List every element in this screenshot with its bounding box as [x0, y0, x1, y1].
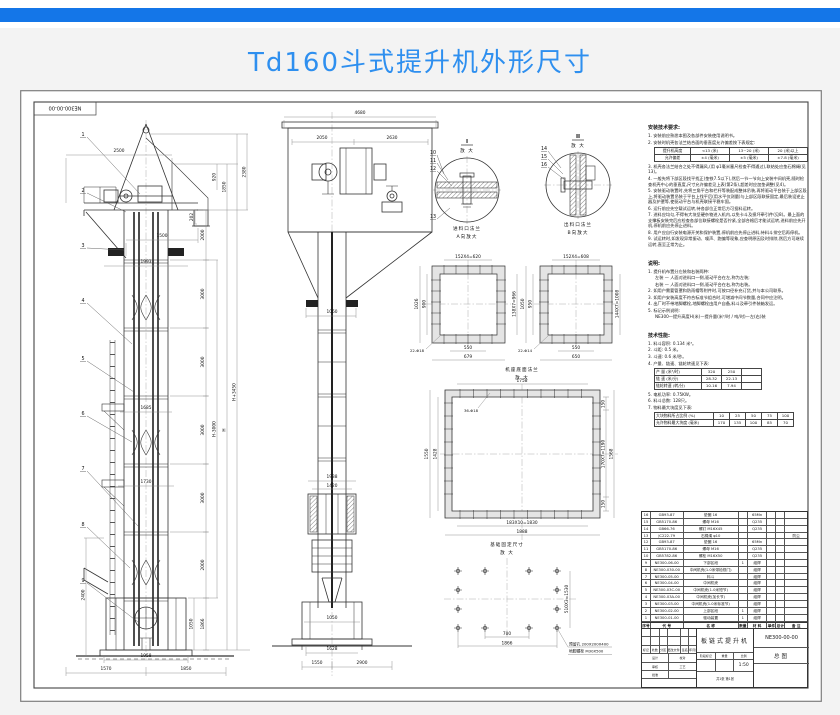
front-elevation [272, 122, 438, 650]
bom-cell: NE300-04-00 [651, 580, 684, 586]
revision-cell [642, 637, 651, 644]
bom-cell [785, 512, 807, 518]
table-cell: 170 [714, 420, 730, 427]
table-cell: 22.13 [722, 376, 742, 383]
bom-cell: NE300-05-00 [651, 574, 684, 580]
remarks-item: 2. 如用户需要管罩和防雨帽等附件时,可按口径补充订货,并与本公司联系。 [648, 288, 808, 294]
bom-cell: GB93-87 [651, 539, 684, 545]
table-cell [742, 369, 762, 376]
bom-cell: 组焊 [748, 560, 768, 566]
bom-cell: 6 [642, 580, 651, 586]
detail-zoom-label: 放 大 [571, 142, 585, 149]
scale-value: 1:50 [734, 660, 753, 671]
bom-row: 1NE300-01-00驱动装置1组焊 [642, 615, 807, 622]
title-block-right: NE300-00-00 总图 [754, 629, 809, 687]
table-cell: 28.32 [702, 376, 722, 383]
bom-cell [767, 574, 776, 580]
tech-item: 2. 斗距: 0.5 米。 [648, 347, 808, 353]
corner-drawing-code: NE300-00-00 [49, 105, 82, 111]
bom-cell: 螺栓 M16X50 [684, 553, 739, 559]
dim-label: 183X10=1830 [506, 520, 537, 526]
bom-cell [739, 526, 748, 532]
outlet-flange-title: 出料口法兰 [564, 221, 592, 228]
dim-label: 900 [422, 300, 428, 308]
install-title: 安装技术要求: [648, 124, 808, 131]
bom-cell: 中间机壳(1.0米带检视门) [684, 567, 739, 573]
dim-label: 679 [464, 354, 472, 360]
bom-cell: 15 [642, 519, 651, 525]
bom-cell [785, 519, 807, 525]
balloon-12: 12 [430, 166, 436, 172]
bom-cell: 下部区段 [684, 560, 739, 566]
bom-cell: 螺母 M16 [684, 546, 739, 552]
bom-cell [776, 574, 785, 580]
bom-row: 15GB5170-86螺母 M16Q235 [642, 519, 807, 526]
revision-label: 签名 [681, 646, 689, 653]
bom-cell [767, 594, 776, 600]
bom-cell [739, 539, 748, 545]
bom-cell: 10 [642, 553, 651, 559]
bom-cell [739, 594, 748, 600]
dim-label: 1568 [609, 448, 615, 459]
bom-cell: 2 [642, 608, 651, 614]
dim-label: 1420 [327, 483, 338, 489]
dim-label: 1060 [327, 309, 338, 315]
bom-cell [767, 567, 776, 573]
dim-label: 1050 [327, 615, 338, 621]
bom-cell: Q235 [748, 526, 768, 532]
bom-cell: 3 [642, 601, 651, 607]
tech-item: 7. 物料最大块度见下表: [648, 405, 808, 411]
bom-row: 7NE300-05-00料斗组焊 [642, 574, 807, 581]
balloon-8: 8 [81, 522, 84, 528]
install-item: 4. 一般先将下部区段找平找正(垫铁7.5以下),然后一节一节向上安装中间机壳,… [648, 176, 808, 187]
outlet-flange-subtitle: B向放大 [568, 229, 589, 236]
install-item: 7. 进料应均匀,不得有大块坚硬杂物进入机内,以免卡斗及损坏牵引件(见8)。最上… [648, 212, 808, 229]
balloon-16: 16 [541, 162, 547, 168]
table-cell: 100 [746, 420, 762, 427]
bom-cell: NE300-01-00 [651, 615, 684, 621]
revision-row [642, 629, 696, 637]
table-cell: <13 (米) [691, 148, 730, 155]
signature-label: 校对 [669, 654, 696, 661]
balloon-10: 10 [430, 150, 436, 156]
dim-label: H-3000 [212, 421, 218, 437]
dim-label: 1730 [141, 479, 152, 485]
foundation-hole-note: 预留孔 200X200X400 [569, 642, 609, 647]
bom-cell: 垫圈 16 [684, 539, 739, 545]
dim-label: 1866 [502, 641, 513, 647]
bom-cell: GB5782-86 [651, 553, 684, 559]
bom-cell: 组焊 [748, 574, 768, 580]
bom-row: 4NE300-03A-00中间机壳(加长节)组焊 [642, 594, 807, 601]
bom-cell: 上部区段 [684, 608, 739, 614]
bom-cell: 7 [642, 574, 651, 580]
balloon-2: 2 [81, 188, 84, 194]
table-cell: 70 [778, 420, 794, 427]
bom-cell: NE300-03C-00 [651, 587, 684, 593]
table-cell: ±4 (毫米) [691, 155, 730, 162]
bom-cell [776, 615, 785, 621]
balloon-7: 7 [81, 466, 84, 472]
bom-cell [785, 574, 807, 580]
revision-label: 年月日 [689, 646, 696, 653]
performance-table: 产 量 (米³/时) 320 250 链 速 (米/分) 28.32 22.13… [654, 368, 762, 390]
balloon-3: 3 [81, 243, 84, 249]
dim-label: 1428 [433, 448, 439, 459]
remarks-item: 4. 出厂时不带地脚螺栓,地脚螺栓由用户自备,料斗及牵引件装箱发运。 [648, 301, 808, 307]
bom-cell: Q235 [748, 519, 768, 525]
bom-cell: 14 [642, 526, 651, 532]
revision-cell [660, 637, 668, 644]
bom-cell [776, 594, 785, 600]
bom-cell: NE300-030-00 [651, 567, 684, 573]
bom-cell [776, 601, 785, 607]
remarks-item: 5. 标记示例说明: [648, 308, 808, 314]
bom-cell [785, 615, 807, 621]
dim-label: 1570 [101, 666, 112, 672]
bom-cell [767, 533, 776, 539]
revision-cell [681, 637, 689, 644]
bom-cell: 料斗 [684, 574, 739, 580]
bom-cell [776, 553, 785, 559]
dim-label: 1850 [222, 181, 228, 192]
dim-label: 152X4=620 [455, 254, 481, 260]
misc-label: 阶段标记 [697, 653, 716, 659]
bom-cell: 驱动装置 [684, 615, 739, 621]
table-cell: ±7.8 (毫米) [769, 155, 808, 162]
revision-header-row: 标记处数分区更改文件号签名年月日 [642, 646, 696, 654]
balloon-1: 1 [81, 132, 84, 138]
tech-item: 3. 斗速: 0.6 米/秒。 [648, 354, 808, 360]
bom-cell: 组焊 [748, 608, 768, 614]
bom-cell: 组焊 [748, 601, 768, 607]
bom-cell: 组焊 [748, 587, 768, 593]
title-block-revision-area: 标记处数分区更改文件号签名年月日 设计校对 审核工艺 批准 [642, 629, 697, 687]
bom-cell: 中间机壳 [684, 580, 739, 586]
bom-cell [785, 587, 807, 593]
signature-cell [669, 671, 696, 678]
bom-cell: 1 [739, 615, 748, 621]
balloon-15: 15 [541, 154, 547, 160]
dim-label: 170X7=1190 [601, 440, 607, 469]
revision-cell [689, 629, 696, 636]
lump-size-table: 大块物料所占比例 (%) 10 25 50 75 100 允许物料最大块度 (毫… [654, 412, 794, 427]
detail-mark: I [466, 139, 468, 145]
bom-cell: 中间机壳(加长节) [684, 594, 739, 600]
revision-cell [689, 637, 696, 644]
table-cell: 75 [762, 413, 778, 420]
misc-value-row: 1:50 [697, 660, 753, 672]
table-cell: 提升机高度 [655, 148, 691, 155]
dim-label: 2380 [242, 166, 248, 177]
dim-label: 550 [572, 345, 580, 351]
bom-cell [739, 580, 748, 586]
balloon-14: 14 [541, 146, 547, 152]
bom-row: 10GB5782-86螺栓 M16X50Q235 [642, 553, 807, 560]
dim-label: 3000 [200, 288, 206, 299]
table-cell: 链 速 (米/分) [655, 376, 702, 383]
remarks-item: 左装 — 人面对进料口一侧,驱动平台在左,称为左装; [648, 275, 808, 281]
install-requirements-section: 安装技术要求: 1. 安装前应熟悉本图及各部件安装使用说明书。 2. 安装时机壳… [648, 124, 808, 248]
bom-row: 12GB93-87垫圈 1665Mn [642, 539, 807, 546]
tech-title: 技术性能: [648, 332, 808, 339]
bom-cell [748, 533, 768, 539]
flange-a [420, 260, 517, 360]
install-item: 2. 安装时机壳各法兰结合面的垂直度允许偏差按下表规定: [648, 140, 808, 146]
table-cell: 13~20 (米) [730, 148, 769, 155]
revision-cell [668, 637, 682, 644]
dim-label: 1550 [424, 448, 430, 459]
dim-label: 1685 [141, 405, 152, 411]
bom-cell [785, 553, 807, 559]
dim-label: 1628 [327, 646, 338, 652]
bom-cell [767, 539, 776, 545]
bom-cell [767, 580, 776, 586]
signature-row: 审核工艺 [642, 663, 696, 671]
bom-cell [739, 574, 748, 580]
dim-label: 3000 [200, 424, 206, 435]
dim-label: 1938 [327, 474, 338, 480]
table-cell: 允许偏差 [655, 155, 691, 162]
bom-cell [785, 594, 807, 600]
base-flange-title: 机座底面法兰 [505, 366, 539, 373]
bom-cell [767, 512, 776, 518]
revision-cell [681, 629, 689, 636]
bom-cell [785, 608, 807, 614]
dim-label: 138X7=966 [512, 291, 518, 317]
dim-label: 1550 [312, 660, 323, 666]
bom-cell [785, 580, 807, 586]
parts-list: 16GB93-87垫圈 1665Mn 15GB5170-86螺母 M16Q235… [641, 511, 808, 630]
signature-label: 设计 [642, 654, 669, 661]
tolerance-table: 提升机高度 <13 (米) 13~20 (米) 20 (米)以上 允许偏差 ±4… [654, 147, 808, 162]
bom-cell [776, 587, 785, 593]
bom-cell: NE300-03-00 [651, 601, 684, 607]
bom-cell: 11 [642, 546, 651, 552]
page-title: Td160斗式提升机外形尺寸 [0, 42, 840, 79]
designation-formula: NE300—提升高度H(米)—提升量(米³/时 / 吨/时)—左(右)装 [648, 314, 808, 320]
title-block-center: 板链式提升机 阶段标记 重量 比例 1:50 共1张 第1张 [697, 629, 754, 687]
bom-cell: GB66-76 [651, 526, 684, 532]
inlet-flange-title: 进料口法兰 [453, 225, 481, 232]
bom-cell: 防尘 [785, 533, 807, 539]
bom-row: 6NE300-04-00中间机壳组焊 [642, 580, 807, 587]
remarks-item: 3. 如用户安装高度不符合标准节组合时,可增减中间节数量,合同中应注明。 [648, 295, 808, 301]
bom-cell [776, 580, 785, 586]
table-cell: 50 [746, 413, 762, 420]
revision-label: 处数 [651, 646, 660, 653]
revision-cell [651, 629, 660, 636]
balloon-6: 6 [81, 411, 84, 417]
bom-cell: 螺钉 M16X45 [684, 526, 739, 532]
remarks-section: 说明: 1. 提升机布置分左装和右装两种: 左装 — 人面对进料口一侧,驱动平台… [648, 260, 808, 320]
technical-performance-section: 技术性能: 1. 料斗容积: 0.134 米³。 2. 斗距: 0.5 米。 3… [648, 332, 808, 427]
bom-cell [776, 519, 785, 525]
dim-label: 2400 [81, 589, 87, 600]
bom-cell [739, 587, 748, 593]
revision-row [642, 637, 696, 645]
dim-label: 1026 [414, 298, 420, 309]
tech-item: 6. 料斗总数: 128只。 [648, 398, 808, 404]
flange-b [526, 260, 620, 360]
bom-cell: 12 [642, 539, 651, 545]
revision-cell [651, 637, 660, 644]
foundation-title: 基础固定尺寸 [490, 541, 524, 548]
install-item: 6. 运行前应先空载试运转,待各部位正常后方可投料运转。 [648, 206, 808, 212]
remarks-item: 1. 提升机布置分左装和右装两种: [648, 269, 808, 275]
hole-callout: 22-Φ18 [410, 348, 425, 353]
bom-cell: 16 [642, 512, 651, 518]
detail-i [430, 145, 499, 222]
drawing-type: 总图 [754, 648, 809, 664]
bom-row: 14GB66-76螺钉 M16X45Q235 [642, 526, 807, 533]
bom-cell: 中间机壳(1.0米标准节) [684, 601, 739, 607]
dim-label: 1758 [517, 378, 528, 384]
dim-label: H [222, 428, 228, 431]
bom-cell: NE300-06-00 [651, 560, 684, 566]
bom-cell [739, 512, 748, 518]
bom-cell: 垫圈 16 [684, 512, 739, 518]
bom-cell: JC222-79 [651, 533, 684, 539]
table-cell: 320 [702, 369, 722, 376]
bom-cell [776, 560, 785, 566]
table-cell: 25 [730, 413, 746, 420]
bom-cell: 4 [642, 594, 651, 600]
bom-cell: 螺母 M16 [684, 519, 739, 525]
hole-callout: 22-Φ14 [518, 348, 533, 353]
bom-cell: 组焊 [748, 615, 768, 621]
dim-label: 1888 [517, 529, 528, 535]
bom-row: 16GB93-87垫圈 1665Mn [642, 512, 807, 519]
bom-cell [785, 560, 807, 566]
bom-cell: 65Mn [748, 539, 768, 545]
bom-cell [739, 553, 748, 559]
bom-row: 8NE300-030-00中间机壳(1.0米带检视门)组焊 [642, 567, 807, 574]
dim-label: 2630 [387, 135, 398, 141]
dim-label: 550 [464, 345, 472, 351]
bom-cell: Q235 [748, 553, 768, 559]
table-cell [742, 376, 762, 383]
dim-label: 1993 [141, 259, 152, 265]
bom-cell: GB5170-86 [651, 519, 684, 525]
revision-cell [660, 629, 668, 636]
dim-label: 1866 [200, 618, 206, 629]
detail-ii [541, 140, 610, 217]
revision-label: 标记 [642, 646, 651, 653]
bom-cell [767, 553, 776, 559]
signature-row: 批准 [642, 671, 696, 679]
foundation-subtitle: 放 大 [500, 549, 514, 556]
bom-cell [739, 519, 748, 525]
table-cell: 产 量 (米³/时) [655, 369, 702, 376]
bom-cell [785, 539, 807, 545]
dim-label: 700 [503, 631, 511, 637]
left-elevation [76, 124, 234, 659]
balloon-9: 9 [81, 578, 84, 584]
bom-cell: GB93-87 [651, 512, 684, 518]
notes-panel: 安装技术要求: 1. 安装前应熟悉本图及各部件安装使用说明书。 2. 安装时机壳… [648, 124, 808, 439]
bom-cell: 1 [739, 608, 748, 614]
table-cell: 135 [730, 420, 746, 427]
bom-cell [776, 539, 785, 545]
tech-item: 1. 料斗容积: 0.134 米³。 [648, 341, 808, 347]
dim-label: 144X7=1008 [615, 290, 621, 319]
bom-cell [785, 601, 807, 607]
bom-cell [776, 512, 785, 518]
revision-cell [642, 629, 651, 636]
revision-label: 更改文件号 [668, 646, 682, 653]
table-cell: 10 [714, 413, 730, 420]
signature-label: 批准 [642, 671, 669, 678]
dim-label: H+3450 [232, 383, 238, 401]
bom-row: 11GB5170-86螺母 M16Q235 [642, 546, 807, 553]
bom-row: 2NE300-02-00上部区段1组焊 [642, 608, 807, 615]
install-item: 3. 机壳各法兰结合之处不得漏风,(用 φ1毫米塞尺检查不得通过),联结处应垫石… [648, 164, 808, 175]
table-cell: 20 (米)以上 [769, 148, 808, 155]
signature-row: 设计校对 [642, 654, 696, 662]
bom-cell [767, 608, 776, 614]
bom-cell [785, 567, 807, 573]
dim-label: 510X3=1530 [564, 585, 570, 614]
bom-cell: 组焊 [748, 594, 768, 600]
bom-cell [776, 546, 785, 552]
inlet-flange-subtitle: A向放大 [457, 233, 478, 240]
dim-label: 152X4=608 [563, 254, 589, 260]
bom-cell [739, 546, 748, 552]
foundation-bolt-note: 地脚螺栓 M30X500 [569, 649, 604, 654]
bom-cell: 9 [642, 560, 651, 566]
signature-label: 审核 [642, 663, 669, 670]
dim-label: 3000 [200, 492, 206, 503]
bom-row: 13JC222-79石棉绳 φ10防尘 [642, 533, 807, 540]
dim-label: 2050 [317, 135, 328, 141]
bom-cell [785, 526, 807, 532]
balloon-4: 4 [81, 298, 84, 304]
dim-label: 2900 [357, 660, 368, 666]
bom-cell [785, 546, 807, 552]
bom-cell: NE300-03A-00 [651, 594, 684, 600]
dim-label: 920 [212, 173, 218, 181]
bom-cell [739, 567, 748, 573]
bom-cell [776, 526, 785, 532]
top-banner [0, 8, 840, 22]
table-cell: 85 [762, 420, 778, 427]
remarks-item: 右装 — 人面对进料口一侧,驱动平台在右,称为右装。 [648, 282, 808, 288]
detail-mark: II [576, 134, 580, 140]
bom-cell [767, 601, 776, 607]
bom-cell [776, 567, 785, 573]
table-cell: 100 [778, 413, 794, 420]
tech-item: 5. 电机功率: 0.75KW。 [648, 392, 808, 398]
tech-item: 4. 产量、链速、链轮转速见下表: [648, 361, 808, 367]
misc-label-row: 阶段标记 重量 比例 [697, 653, 753, 660]
misc-label: 重量 [716, 653, 735, 659]
bom-cell: 65Mn [748, 512, 768, 518]
bom-cell: 组焊 [748, 567, 768, 573]
bom-row: 9NE300-06-00下部区段1组焊 [642, 560, 807, 567]
bom-cell: 石棉绳 φ10 [684, 533, 739, 539]
dim-label: 1850 [181, 666, 192, 672]
dim-label: 950 [528, 300, 534, 308]
table-cell [742, 382, 762, 389]
bom-cell: 13 [642, 533, 651, 539]
weight-value [716, 660, 735, 671]
table-cell: 允许物料最大块度 (毫米) [655, 420, 714, 427]
bom-cell: Q235 [748, 546, 768, 552]
install-item: 5. 安装驱动装置时,先将三角平台和栏杆等装配成整体吊装,再将驱动平台装于上部区… [648, 188, 808, 205]
bom-cell: 1 [739, 560, 748, 566]
